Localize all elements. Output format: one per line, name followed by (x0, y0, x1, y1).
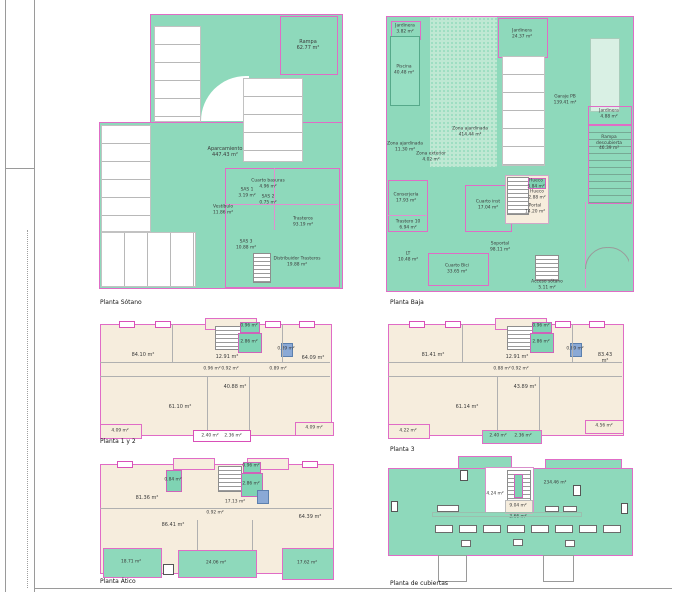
terrace-left (103, 548, 162, 578)
garage-door-arc (607, 247, 629, 269)
wall (585, 202, 586, 288)
window (302, 461, 318, 468)
storage-wall (274, 168, 275, 230)
window (409, 321, 425, 328)
room-rampa (280, 16, 338, 75)
wall (249, 376, 250, 434)
wall (282, 324, 283, 362)
chimney (460, 470, 468, 481)
solar-panel (435, 525, 453, 533)
terrace-right (282, 548, 334, 580)
room-cuarto-bici (428, 253, 489, 286)
window (445, 321, 461, 328)
chimney (391, 501, 398, 512)
balcony-center-green (482, 430, 542, 444)
window (119, 321, 135, 328)
plan-atico: 0.96 m² 2.86 m² 0.84 m² 81.36 m² 17.13 m… (97, 458, 337, 584)
solar-panel (531, 525, 549, 533)
shaft-box (166, 470, 182, 492)
solar-panel (563, 506, 577, 512)
rooflight-box (163, 564, 174, 575)
balcony-right (585, 420, 624, 434)
wall (388, 376, 622, 377)
arc-shape (607, 247, 629, 269)
wall (207, 376, 208, 434)
elevator-box (257, 490, 269, 504)
window (589, 321, 605, 328)
sheet-bottom-line (34, 588, 672, 589)
parking-stalls-upper-left (154, 26, 201, 122)
plan-title-baja: Planta Baja (390, 299, 424, 306)
terrace-center (178, 550, 257, 578)
stair-atico (218, 466, 242, 492)
wall (539, 376, 540, 434)
solar-panel (483, 525, 501, 533)
garage-door-arc (585, 247, 607, 269)
margin-line-inner (34, 0, 35, 592)
zona-ajardinada-central (430, 17, 497, 167)
stair-baja (507, 177, 529, 215)
plan-title-sotano: Planta Sótano (100, 299, 142, 306)
shaft-box (243, 462, 261, 473)
shaft-box (530, 333, 554, 353)
atico-top-tab (173, 458, 215, 470)
wall (388, 215, 426, 216)
stair-acceso-sotano (535, 255, 559, 281)
chimney (621, 503, 628, 514)
hueco-box (528, 178, 546, 189)
margin-microtext (27, 230, 28, 588)
solar-panel (579, 525, 597, 533)
solar-panel (545, 506, 559, 512)
plan-sotano: Rampa 62.77 m² Aparcamiento 447.43 m² Cu… (96, 12, 346, 296)
balcony-right (295, 422, 334, 436)
wall (172, 324, 173, 362)
stair-sotano (253, 253, 271, 283)
solar-panel (437, 505, 459, 512)
plan-3: 0.96 m² 2.86 m² 0.89 m² 81.41 m² 12.91 m… (387, 318, 627, 444)
projection-below (438, 555, 467, 582)
roof-box (565, 540, 575, 547)
room-jardinera-2 (498, 18, 548, 58)
wall (388, 362, 622, 363)
garage-inner-zone (590, 38, 620, 112)
shaft-box (240, 322, 260, 333)
window (117, 461, 133, 468)
roof-box (461, 540, 471, 547)
balcony-left (100, 424, 142, 439)
arc-shape (585, 247, 607, 269)
parking-stalls-bottom (101, 232, 196, 287)
plan-cubiertas: 4.24 m² 9.04 m² 3.66 m² 234.46 m² (385, 452, 635, 588)
plan-1-y-2: 0.96 m² 2.86 m² 0.89 m² 84.10 m² 12.91 m… (97, 318, 337, 444)
wall (100, 508, 332, 509)
shaft-box (514, 474, 523, 498)
solar-panel (555, 525, 573, 533)
garage-stalls (502, 56, 545, 166)
roof-line (432, 512, 582, 517)
room-piscina (390, 36, 420, 106)
window (299, 321, 315, 328)
room-jardinera-3 (588, 106, 632, 125)
margin-line-outer (5, 0, 6, 592)
window (155, 321, 171, 328)
shaft-box (238, 333, 262, 353)
wall (100, 376, 330, 377)
storage-block-outline (225, 168, 340, 288)
roof-box (513, 539, 523, 546)
storage-wall (225, 204, 338, 205)
window (555, 321, 571, 328)
plan-title-1-y-2: Planta 1 y 2 (100, 438, 136, 445)
margin-divider (5, 168, 35, 169)
plan-title-atico: Planta Ático (100, 578, 136, 585)
balcony-center (193, 430, 251, 442)
chimney (573, 485, 581, 496)
drawing-sheet: Rampa 62.77 m² Aparcamiento 447.43 m² Cu… (0, 0, 677, 600)
solar-panel (603, 525, 621, 533)
wall (462, 324, 463, 362)
projection-below (543, 555, 574, 582)
balcony-left (388, 424, 430, 439)
window (265, 321, 281, 328)
solar-panel (507, 525, 525, 533)
shaft-box (532, 322, 552, 333)
wall (497, 376, 498, 434)
room-rampa-descubierta (588, 125, 632, 204)
solar-panel (459, 525, 477, 533)
wall (100, 362, 330, 363)
plan-baja: Jardinera 3.82 m² Piscina 40.48 m² Zona … (385, 12, 635, 296)
plan-title-cubiertas: Planta de cubiertas (390, 580, 448, 587)
parking-stalls-center (243, 78, 303, 162)
parking-stalls-lower-left (101, 125, 151, 232)
room-conserjeria (388, 180, 428, 232)
wall (572, 324, 573, 362)
